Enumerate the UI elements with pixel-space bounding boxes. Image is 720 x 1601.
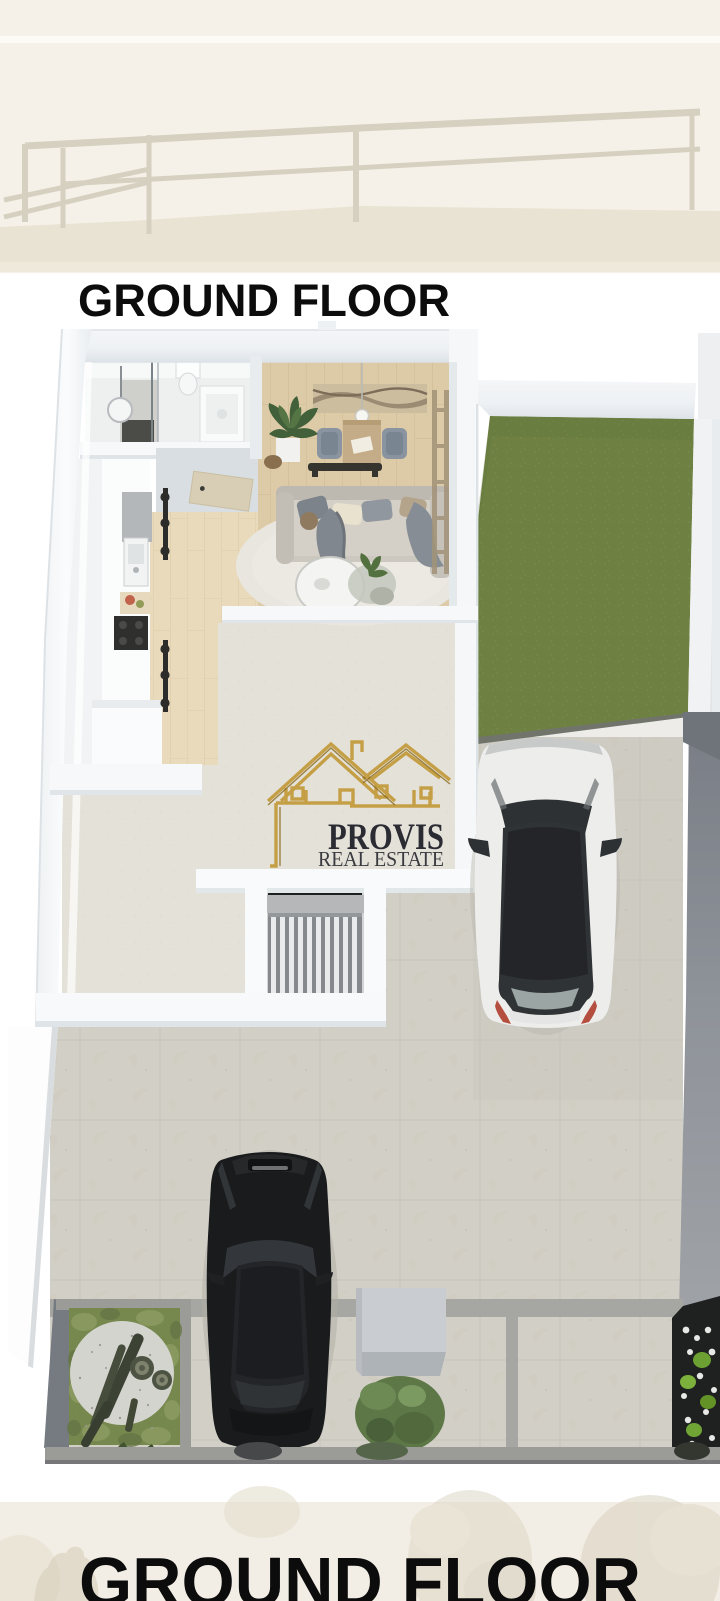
svg-text:GROUND FLOOR: GROUND FLOOR: [78, 275, 450, 326]
svg-text:REAL ESTATE: REAL ESTATE: [318, 847, 444, 871]
svg-text:GROUND FLOOR: GROUND FLOOR: [79, 1543, 641, 1601]
